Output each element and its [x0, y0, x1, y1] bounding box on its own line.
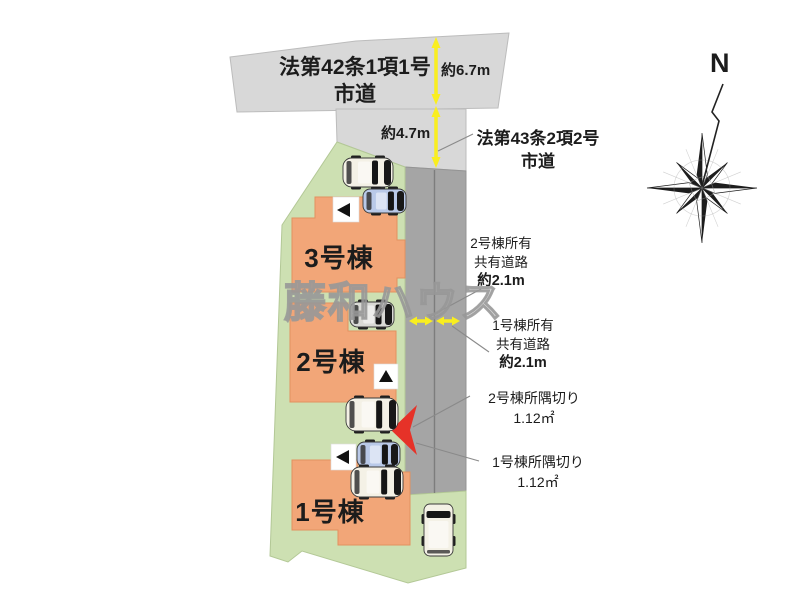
shared-road-1-width: 約2.1m: [476, 354, 570, 373]
shared-road-2-owner: 2号棟所有: [454, 234, 548, 253]
corner-cut-2-name: 2号棟所隅切り: [468, 388, 600, 408]
corner-cut-1-label: 1号棟所隅切り 1.12㎡: [472, 452, 604, 492]
side-road-name: 法第43条2項2号: [468, 127, 608, 150]
top-road-width-label: 約6.7m: [441, 61, 490, 81]
corner-cut-1-name: 1号棟所隅切り: [472, 452, 604, 472]
watermark-text: 藤和ハウス: [284, 276, 504, 331]
corner-cut-1-area: 1.12㎡: [472, 472, 604, 492]
building-1-label: 1号棟: [282, 496, 378, 530]
car-icon: [363, 187, 406, 216]
building-2-label: 2号棟: [283, 346, 379, 380]
shared-road-2-type: 共有道路: [454, 253, 548, 272]
shared-road-1-type: 共有道路: [476, 335, 570, 354]
top-road-label: 法第42条1項1号 市道: [250, 54, 460, 108]
compass-rose-icon: [647, 84, 757, 243]
building-3-label: 3号棟: [291, 242, 387, 276]
side-road-type: 市道: [468, 150, 608, 173]
top-road-type: 市道: [250, 81, 460, 108]
side-road-label: 法第43条2項2号 市道: [468, 127, 608, 173]
top-road-name: 法第42条1項1号: [250, 54, 460, 81]
compass-north-label: N: [710, 46, 730, 81]
car-icon: [422, 504, 456, 556]
car-icon: [343, 156, 393, 190]
car-icon: [351, 465, 403, 500]
side-road-width-label: 約4.7m: [381, 124, 430, 144]
site-plan-canvas: 法第42条1項1号 市道 法第43条2項2号 市道 約6.7m 約4.7m 2号…: [0, 0, 800, 600]
corner-cut-2-area: 1.12㎡: [468, 408, 600, 428]
car-icon: [346, 396, 398, 434]
corner-cut-2-label: 2号棟所隅切り 1.12㎡: [468, 388, 600, 428]
